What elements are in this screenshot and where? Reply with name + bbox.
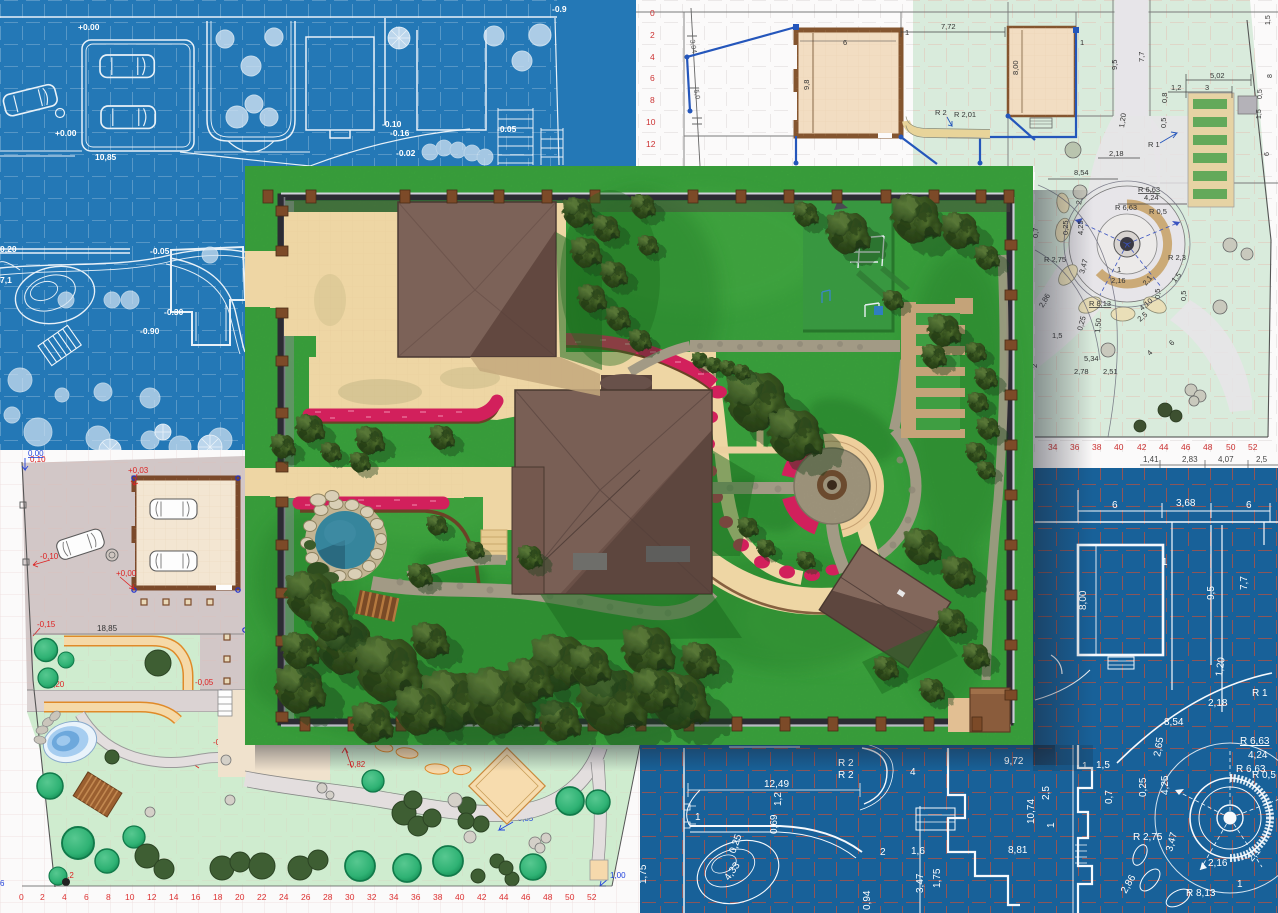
svg-text:8,00: 8,00 [1011, 60, 1020, 75]
svg-text:40: 40 [1114, 442, 1124, 452]
svg-text:18: 18 [213, 892, 223, 902]
svg-text:18,85: 18,85 [97, 624, 118, 633]
svg-text:46: 46 [521, 892, 531, 902]
svg-text:2,51: 2,51 [1103, 367, 1118, 376]
svg-text:0,5: 0,5 [1257, 89, 1264, 99]
svg-text:0,69: 0,69 [769, 814, 780, 834]
svg-text:2,16: 2,16 [1111, 276, 1126, 285]
svg-text:2,16: 2,16 [1208, 858, 1228, 869]
svg-text:-0.02: -0.02 [396, 148, 416, 158]
svg-text:4,24: 4,24 [1248, 750, 1268, 761]
svg-text:48: 48 [1203, 442, 1213, 452]
svg-text:-0,15: -0,15 [37, 620, 56, 629]
svg-text:0,20: 0,20 [0, 244, 17, 254]
svg-text:6: 6 [650, 73, 655, 83]
svg-text:4,25: 4,25 [1160, 775, 1171, 795]
svg-text:30: 30 [345, 892, 355, 902]
svg-text:0,5: 0,5 [1179, 291, 1188, 301]
svg-text:2: 2 [40, 892, 45, 902]
svg-text:1,2: 1,2 [1171, 83, 1181, 92]
svg-text:34: 34 [389, 892, 399, 902]
svg-text:-0.30: -0.30 [164, 307, 184, 317]
svg-text:50: 50 [1226, 442, 1236, 452]
svg-text:9,5: 9,5 [1206, 586, 1217, 600]
svg-text:8,81: 8,81 [1008, 845, 1028, 856]
svg-text:7,7: 7,7 [1239, 576, 1250, 590]
svg-text:+0.00: +0.00 [55, 128, 77, 138]
svg-text:+0,00: +0,00 [116, 569, 137, 578]
svg-text:1,2: 1,2 [773, 792, 784, 806]
svg-text:4,07: 4,07 [1218, 455, 1234, 464]
svg-text:7,1: 7,1 [0, 275, 12, 285]
svg-text:50: 50 [565, 892, 575, 902]
svg-text:R 6,63: R 6,63 [1115, 203, 1137, 212]
svg-text:8,54: 8,54 [1074, 168, 1089, 177]
svg-text:R 2,01: R 2,01 [954, 110, 976, 119]
svg-text:42: 42 [1137, 442, 1147, 452]
svg-text:R 6,63: R 6,63 [1240, 736, 1270, 747]
svg-text:1: 1 [1080, 38, 1084, 47]
svg-text:2,5: 2,5 [1041, 786, 1052, 800]
svg-text:1,75: 1,75 [638, 864, 649, 884]
svg-text:20: 20 [235, 892, 245, 902]
svg-text:10,74: 10,74 [1026, 799, 1037, 824]
svg-text:-0,05: -0,05 [195, 678, 214, 687]
svg-text:2,83: 2,83 [1182, 455, 1198, 464]
svg-text:-0.05: -0.05 [497, 124, 517, 134]
svg-text:8,54: 8,54 [1164, 717, 1184, 728]
svg-text:R 2: R 2 [838, 770, 854, 781]
svg-text:-0.90: -0.90 [140, 326, 160, 336]
svg-text:6: 6 [843, 38, 847, 47]
svg-text:R 0,5: R 0,5 [1252, 770, 1276, 781]
svg-text:48: 48 [543, 892, 553, 902]
svg-text:16: 16 [191, 892, 201, 902]
svg-text:1,41: 1,41 [1143, 455, 1159, 464]
svg-text:3: 3 [1205, 83, 1209, 92]
svg-text:22: 22 [257, 892, 267, 902]
svg-text:R 2,3: R 2,3 [1168, 253, 1186, 262]
svg-text:3,47: 3,47 [915, 873, 926, 893]
svg-text:R 1: R 1 [1148, 140, 1160, 149]
svg-text:1: 1 [1162, 557, 1168, 568]
svg-text:44: 44 [499, 892, 509, 902]
svg-text:9,8: 9,8 [802, 80, 811, 90]
svg-text:-0.9: -0.9 [552, 4, 567, 14]
svg-text:40: 40 [455, 892, 465, 902]
svg-text:12: 12 [147, 892, 157, 902]
svg-text:8: 8 [650, 95, 655, 105]
svg-text:52: 52 [1248, 442, 1258, 452]
svg-text:7,7: 7,7 [1137, 52, 1146, 62]
svg-text:1: 1 [1117, 265, 1121, 274]
svg-text:1: 1 [1237, 879, 1243, 890]
svg-text:1,00: 1,00 [610, 871, 626, 880]
svg-text:-0,10: -0,10 [40, 552, 59, 561]
svg-text:14: 14 [169, 892, 179, 902]
svg-text:12: 12 [646, 139, 656, 149]
svg-text:2,18: 2,18 [1109, 149, 1124, 158]
svg-text:5,02: 5,02 [1210, 71, 1225, 80]
svg-text:1: 1 [1046, 822, 1057, 828]
svg-text:0,7: 0,7 [1104, 790, 1115, 804]
svg-text:3,68: 3,68 [1176, 498, 1196, 509]
svg-text:38: 38 [1092, 442, 1102, 452]
svg-text:0,94: 0,94 [862, 890, 873, 910]
svg-text:-0.05: -0.05 [150, 246, 170, 256]
svg-text:1,75: 1,75 [932, 868, 943, 888]
svg-text:6: 6 [0, 879, 5, 888]
svg-text:R 2,75: R 2,75 [1133, 832, 1163, 843]
svg-text:0,8: 0,8 [1160, 93, 1169, 103]
svg-text:1,5: 1,5 [1256, 109, 1263, 119]
svg-text:0,25: 0,25 [1138, 777, 1149, 797]
svg-text:36: 36 [411, 892, 421, 902]
svg-text:2: 2 [650, 30, 655, 40]
svg-text:26: 26 [301, 892, 311, 902]
svg-text:52: 52 [587, 892, 597, 902]
svg-text:10,85: 10,85 [95, 152, 117, 162]
svg-text:0: 0 [19, 892, 24, 902]
svg-text:1: 1 [695, 812, 701, 823]
svg-text:+0.00: +0.00 [78, 22, 100, 32]
svg-text:6: 6 [1264, 152, 1271, 156]
svg-text:1: 1 [905, 28, 909, 37]
svg-text:+0,03: +0,03 [128, 466, 149, 475]
svg-text:28: 28 [323, 892, 333, 902]
svg-text:1,6: 1,6 [911, 846, 925, 857]
svg-text:0,5: 0,5 [1159, 118, 1168, 128]
svg-text:0: 0 [650, 8, 655, 18]
svg-text:6: 6 [1112, 500, 1118, 511]
svg-text:24: 24 [279, 892, 289, 902]
svg-text:2,18: 2,18 [1208, 698, 1228, 709]
svg-text:0.00: 0.00 [28, 449, 44, 458]
svg-text:1,5: 1,5 [1096, 760, 1110, 771]
svg-text:42: 42 [477, 892, 487, 902]
svg-text:4: 4 [650, 52, 655, 62]
svg-text:-0.16: -0.16 [390, 128, 410, 138]
svg-text:6: 6 [1246, 500, 1252, 511]
svg-text:9,5: 9,5 [1110, 60, 1119, 70]
svg-text:R 0,5: R 0,5 [1149, 207, 1167, 216]
svg-text:8: 8 [106, 892, 111, 902]
svg-text:2,5: 2,5 [1256, 455, 1268, 464]
svg-text:2: 2 [880, 847, 886, 858]
svg-text:46: 46 [1181, 442, 1191, 452]
svg-text:R 1: R 1 [1252, 688, 1268, 699]
svg-text:7,72: 7,72 [941, 22, 956, 31]
svg-text:32: 32 [367, 892, 377, 902]
svg-text:12,49: 12,49 [764, 779, 789, 790]
svg-text:6: 6 [84, 892, 89, 902]
svg-text:10: 10 [646, 117, 656, 127]
svg-text:R 8,13: R 8,13 [1186, 888, 1216, 899]
svg-text:44: 44 [1159, 442, 1169, 452]
svg-text:1,5: 1,5 [1265, 15, 1272, 25]
svg-text:4: 4 [62, 892, 67, 902]
svg-text:4,24: 4,24 [1144, 193, 1159, 202]
svg-text:38: 38 [433, 892, 443, 902]
svg-text:10: 10 [125, 892, 135, 902]
svg-text:8: 8 [1267, 74, 1274, 78]
svg-text:R 2: R 2 [935, 108, 947, 117]
